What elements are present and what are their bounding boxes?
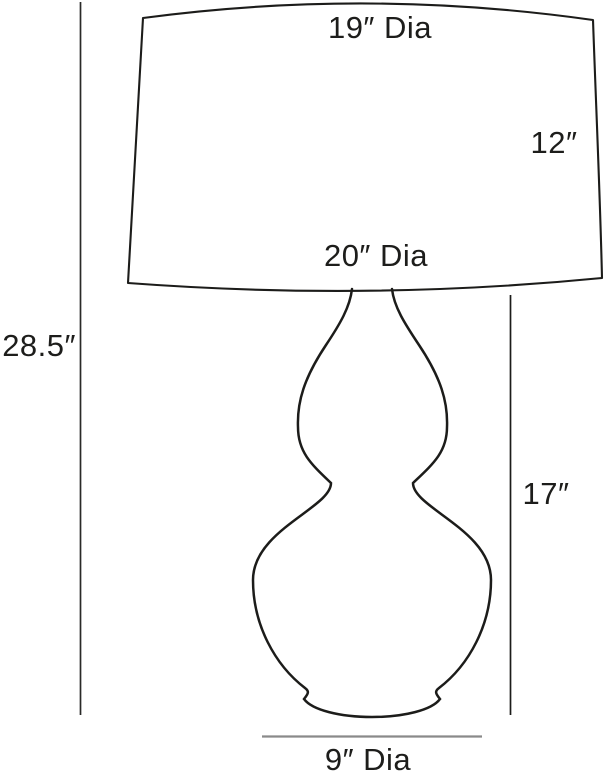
overall-height-label: 28.5″ [0, 330, 76, 361]
lamp-line-drawing [0, 0, 605, 778]
lamp-base-outline [253, 289, 491, 717]
base-height-label: 17″ [516, 478, 576, 509]
shade-top-diameter-label: 19″ Dia [280, 12, 480, 43]
lamp-dimension-diagram: 19″ Dia 12″ 20″ Dia 28.5″ 17″ 9″ Dia [0, 0, 605, 778]
shade-height-label: 12″ [518, 127, 590, 158]
base-bottom-diameter-label: 9″ Dia [278, 744, 458, 775]
shade-bottom-diameter-label: 20″ Dia [280, 240, 472, 271]
